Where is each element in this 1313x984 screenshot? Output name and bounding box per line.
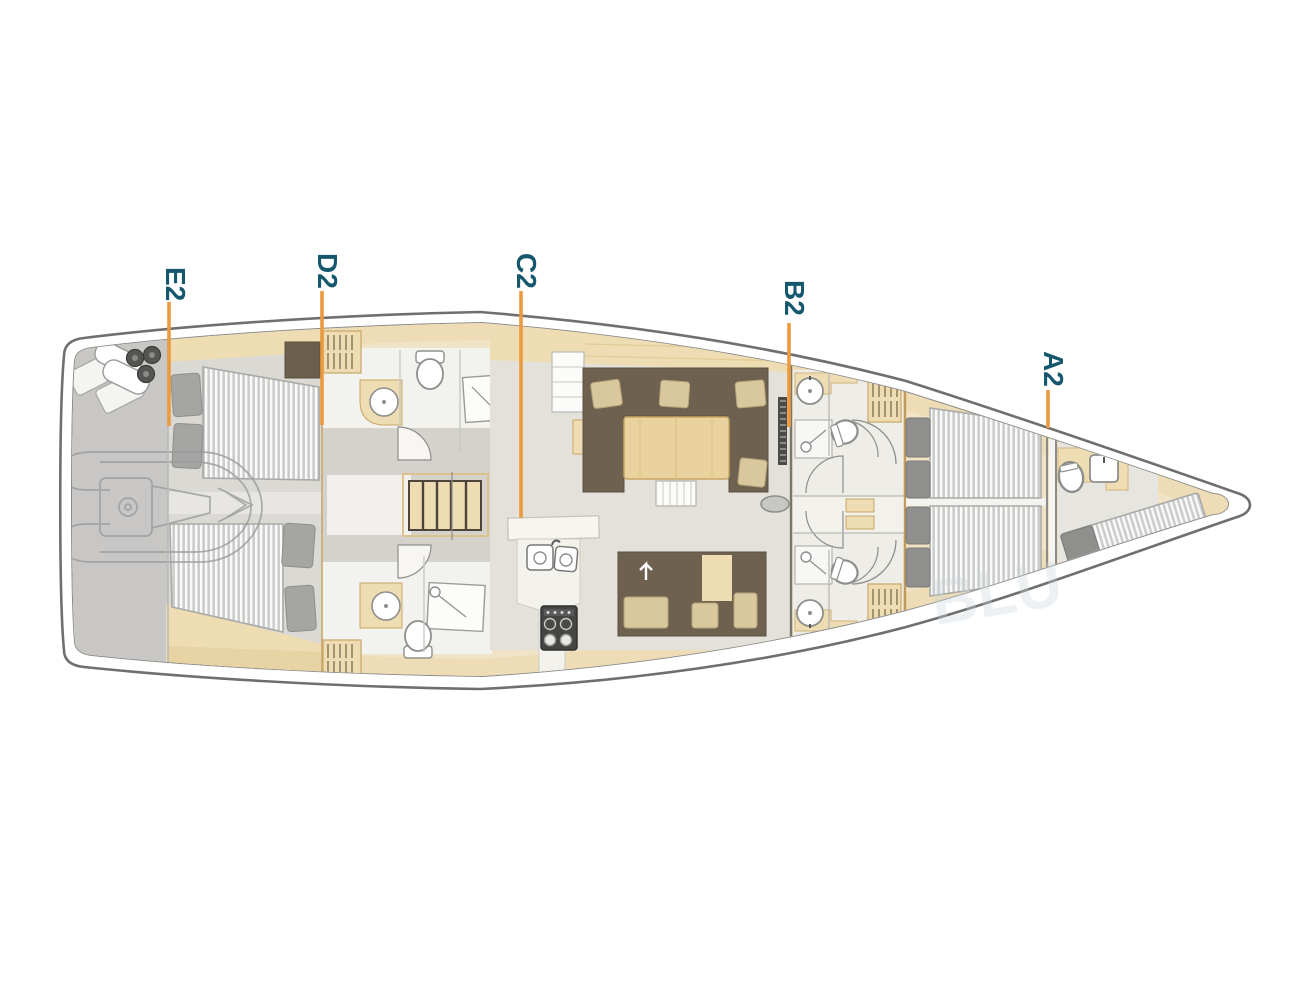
svg-text:D2: D2	[312, 253, 343, 289]
svg-text:E2: E2	[160, 267, 191, 301]
svg-text:A2: A2	[1038, 351, 1069, 387]
svg-text:B2: B2	[779, 280, 810, 316]
svg-text:C2: C2	[511, 253, 542, 289]
